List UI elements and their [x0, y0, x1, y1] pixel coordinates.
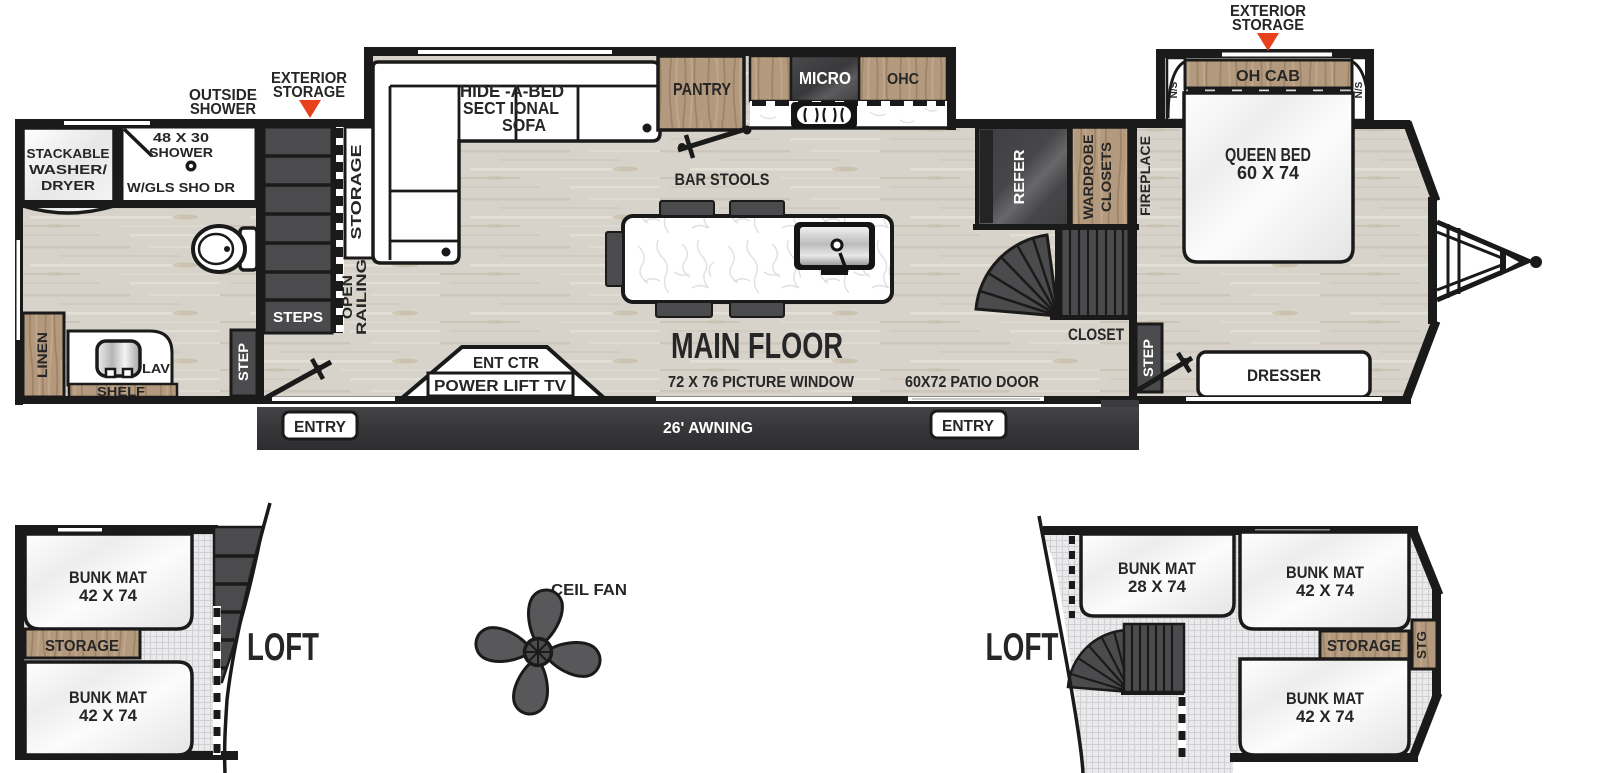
svg-text:LOFT: LOFT: [247, 626, 319, 669]
svg-text:STACKABLE: STACKABLE: [27, 147, 110, 161]
svg-text:QUEEN BED: QUEEN BED: [1225, 145, 1311, 165]
svg-text:WARDROBE: WARDROBE: [1080, 135, 1096, 220]
svg-text:STEP: STEP: [1140, 339, 1156, 377]
svg-text:RAILING: RAILING: [354, 259, 369, 335]
svg-text:STORAGE: STORAGE: [45, 638, 119, 655]
svg-text:42 X 74: 42 X 74: [79, 587, 138, 605]
svg-text:CEIL FAN: CEIL FAN: [551, 582, 627, 599]
svg-text:N/S: N/S: [1354, 81, 1365, 98]
svg-text:SHOWER: SHOWER: [149, 146, 213, 160]
svg-text:STG: STG: [1415, 631, 1429, 659]
svg-text:ENT CTR: ENT CTR: [473, 355, 539, 372]
svg-text:MICRO: MICRO: [799, 68, 851, 88]
svg-text:FIREPLACE: FIREPLACE: [1137, 136, 1153, 216]
svg-text:STORAGE: STORAGE: [273, 84, 345, 101]
svg-text:BUNK MAT: BUNK MAT: [1118, 560, 1196, 578]
svg-text:60X72 PATIO DOOR: 60X72 PATIO DOOR: [905, 374, 1039, 391]
svg-text:LINEN: LINEN: [35, 332, 50, 378]
svg-text:BUNK MAT: BUNK MAT: [1286, 564, 1364, 582]
svg-text:STEP: STEP: [235, 343, 251, 381]
svg-text:CLOSETS: CLOSETS: [1098, 142, 1114, 212]
svg-text:W/GLS SHO DR: W/GLS SHO DR: [127, 181, 235, 195]
svg-text:STORAGE: STORAGE: [348, 145, 365, 240]
svg-text:SOFA: SOFA: [502, 115, 546, 135]
svg-text:60 X 74: 60 X 74: [1237, 163, 1299, 183]
svg-text:MAIN FLOOR: MAIN FLOOR: [671, 325, 843, 366]
svg-text:REFER: REFER: [1011, 149, 1028, 204]
svg-text:BUNK MAT: BUNK MAT: [69, 569, 147, 587]
svg-text:72 X 76 PICTURE WINDOW: 72 X 76 PICTURE WINDOW: [668, 374, 854, 391]
svg-text:DRESSER: DRESSER: [1247, 366, 1321, 385]
svg-text:48 X 30: 48 X 30: [153, 131, 209, 145]
svg-text:28 X 74: 28 X 74: [1128, 578, 1187, 596]
svg-text:42 X 74: 42 X 74: [79, 707, 138, 725]
svg-text:LOFT: LOFT: [986, 626, 1059, 669]
svg-text:42 X 74: 42 X 74: [1296, 582, 1355, 600]
svg-text:OHC: OHC: [887, 71, 919, 88]
svg-text:DRYER: DRYER: [41, 179, 95, 193]
svg-text:ENTRY: ENTRY: [942, 418, 995, 435]
svg-text:OH CAB: OH CAB: [1236, 68, 1300, 85]
svg-text:WASHER/: WASHER/: [29, 163, 108, 177]
svg-text:BAR STOOLS: BAR STOOLS: [675, 170, 770, 189]
svg-text:POWER LIFT TV: POWER LIFT TV: [434, 378, 567, 395]
svg-text:ENTRY: ENTRY: [294, 419, 347, 436]
svg-text:SHOWER: SHOWER: [190, 101, 256, 118]
svg-text:STORAGE: STORAGE: [1232, 17, 1304, 34]
svg-text:OPEN: OPEN: [340, 275, 355, 319]
svg-text:N/S: N/S: [1169, 81, 1180, 98]
svg-text:CLOSET: CLOSET: [1068, 326, 1124, 344]
svg-text:PANTRY: PANTRY: [673, 79, 731, 99]
svg-text:42 X 74: 42 X 74: [1296, 708, 1355, 726]
svg-text:STEPS: STEPS: [273, 309, 323, 326]
svg-text:BUNK MAT: BUNK MAT: [1286, 690, 1364, 708]
svg-text:26' AWNING: 26' AWNING: [663, 420, 753, 437]
svg-text:LAV: LAV: [142, 362, 171, 376]
svg-text:STORAGE: STORAGE: [1327, 638, 1401, 655]
svg-text:BUNK MAT: BUNK MAT: [69, 689, 147, 707]
